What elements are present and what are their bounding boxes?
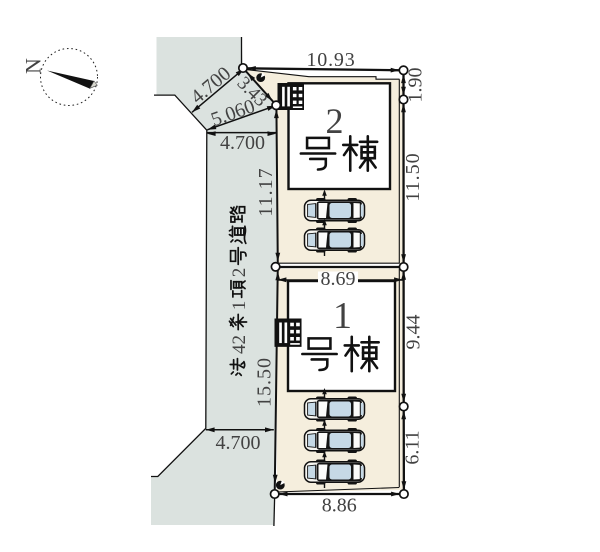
svg-text:4.700: 4.700 [216, 432, 261, 454]
svg-text:9.44: 9.44 [402, 315, 424, 350]
svg-text:1: 1 [229, 301, 250, 311]
svg-text:8.69: 8.69 [321, 268, 356, 290]
svg-text:11.17: 11.17 [255, 167, 277, 216]
svg-text:15.50: 15.50 [253, 357, 275, 407]
svg-text:11.50: 11.50 [402, 152, 424, 201]
svg-text:4.700: 4.700 [220, 132, 265, 154]
svg-text:1.90: 1.90 [405, 68, 427, 103]
svg-text:2: 2 [326, 101, 344, 141]
svg-text:1: 1 [333, 295, 352, 337]
svg-text:8.86: 8.86 [322, 495, 357, 517]
svg-text:42: 42 [229, 335, 250, 354]
svg-text:N: N [21, 58, 46, 74]
svg-text:10.93: 10.93 [307, 49, 356, 71]
svg-text:6.11: 6.11 [401, 430, 423, 464]
svg-text:2: 2 [229, 268, 250, 278]
